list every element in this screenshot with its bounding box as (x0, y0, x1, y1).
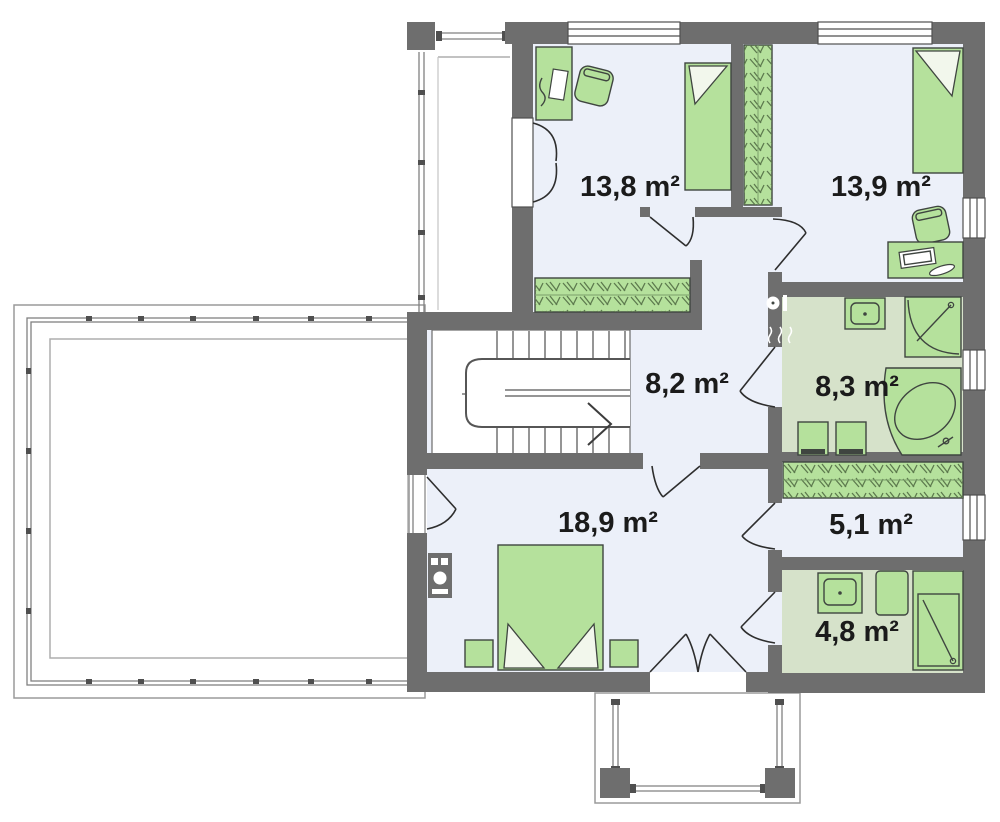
area-label-closet: 5,1 m² (829, 509, 913, 541)
desk-chair (911, 205, 951, 245)
stair-handrail (466, 359, 630, 427)
balcony-pillar-left (600, 768, 630, 798)
floor-plan-page: 13,8 m² 13,9 m² 8,2 m² 8,3 m² 18,9 m² 5,… (0, 0, 1000, 822)
floor-plan-svg: 13,8 m² 13,9 m² 8,2 m² 8,3 m² 18,9 m² 5,… (0, 0, 1000, 822)
side-balcony (407, 22, 510, 312)
area-label-bathroom-main: 8,3 m² (815, 371, 899, 403)
nightstand-left (465, 640, 493, 667)
window-top-right (818, 22, 932, 44)
balcony-pillar-right (765, 768, 795, 798)
washer (798, 422, 828, 455)
window-right-closet (963, 495, 985, 540)
terrace-railing-posts (26, 316, 372, 684)
area-label-bedroom-13-8: 13,8 m² (580, 171, 680, 203)
corner-shower (905, 297, 961, 357)
toilet-unit (876, 571, 908, 615)
window-right-bedroom (963, 198, 985, 238)
closet-wardrobe (783, 462, 963, 498)
nightstand-right (610, 640, 638, 667)
dryer (836, 422, 866, 455)
area-label-hall: 8,2 m² (645, 368, 729, 400)
rear-balcony (595, 693, 800, 803)
balcony-french-window (512, 118, 533, 207)
area-label-bedroom-13-9: 13,9 m² (831, 171, 931, 203)
area-label-master-bedroom: 18,9 m² (558, 507, 658, 539)
staircase (432, 330, 630, 458)
corner-pillar (407, 22, 435, 50)
tv-unit (428, 553, 452, 598)
shower (913, 571, 963, 670)
window-top-left (568, 22, 680, 44)
terrace (14, 305, 425, 698)
terrace-floor-edge (50, 339, 408, 658)
hall-wardrobe (535, 278, 690, 312)
area-label-bathroom-small: 4,8 m² (815, 616, 899, 648)
wardrobe (744, 45, 772, 205)
window-right-bathroom (963, 350, 985, 390)
